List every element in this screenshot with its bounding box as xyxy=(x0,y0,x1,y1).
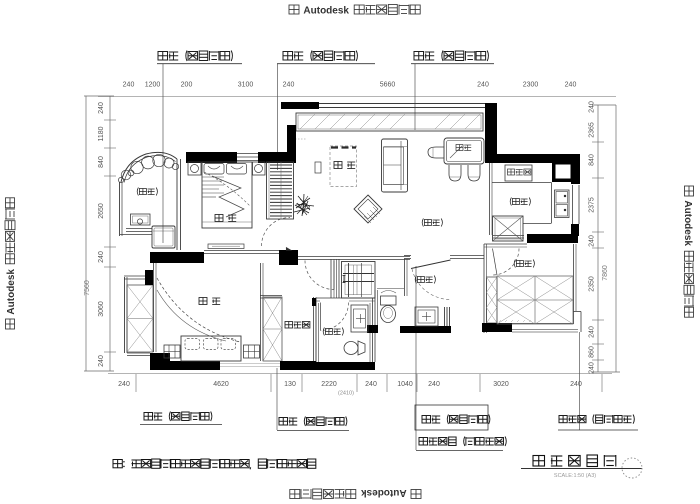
svg-text:840: 840 xyxy=(98,156,105,168)
svg-text:2375: 2375 xyxy=(589,197,596,213)
svg-text:240: 240 xyxy=(477,82,489,89)
svg-text:1200: 1200 xyxy=(145,82,161,89)
svg-text:2350: 2350 xyxy=(589,276,596,292)
svg-text:240: 240 xyxy=(98,102,105,114)
svg-text:240: 240 xyxy=(98,251,105,263)
svg-text:240: 240 xyxy=(589,235,596,247)
svg-text:7860: 7860 xyxy=(602,265,609,281)
svg-text:240: 240 xyxy=(98,355,105,367)
svg-text:240: 240 xyxy=(565,82,577,89)
svg-text:240: 240 xyxy=(283,82,295,89)
svg-text:840: 840 xyxy=(589,154,596,166)
svg-text:1040: 1040 xyxy=(397,381,413,388)
svg-text:2220: 2220 xyxy=(321,381,337,388)
svg-text:Autodesk: Autodesk xyxy=(361,487,407,498)
svg-text:(2410): (2410) xyxy=(338,391,354,397)
svg-text:860: 860 xyxy=(589,346,596,358)
svg-text:240: 240 xyxy=(428,381,440,388)
svg-text:3020: 3020 xyxy=(493,381,509,388)
svg-text:Autodesk: Autodesk xyxy=(6,269,17,315)
svg-text:130: 130 xyxy=(284,381,296,388)
svg-text:3060: 3060 xyxy=(98,301,105,317)
svg-text:2650: 2650 xyxy=(98,203,105,219)
svg-text:240: 240 xyxy=(589,326,596,338)
svg-text:5660: 5660 xyxy=(380,82,396,89)
svg-text:2365: 2365 xyxy=(589,122,596,138)
svg-text:Autodesk: Autodesk xyxy=(682,200,693,246)
svg-text:240: 240 xyxy=(365,381,377,388)
svg-text:240: 240 xyxy=(570,381,582,388)
svg-text:240: 240 xyxy=(123,82,135,89)
svg-text:240: 240 xyxy=(589,101,596,113)
svg-text:240: 240 xyxy=(118,381,130,388)
svg-text:200: 200 xyxy=(181,82,193,89)
svg-text:4620: 4620 xyxy=(213,381,229,388)
svg-text:Autodesk: Autodesk xyxy=(303,6,349,17)
svg-text:7560: 7560 xyxy=(84,280,91,296)
svg-text:SCALE:1:50 (A3): SCALE:1:50 (A3) xyxy=(554,473,596,479)
svg-text:3100: 3100 xyxy=(238,82,254,89)
svg-text:2300: 2300 xyxy=(523,82,539,89)
svg-text:1180: 1180 xyxy=(98,126,105,141)
